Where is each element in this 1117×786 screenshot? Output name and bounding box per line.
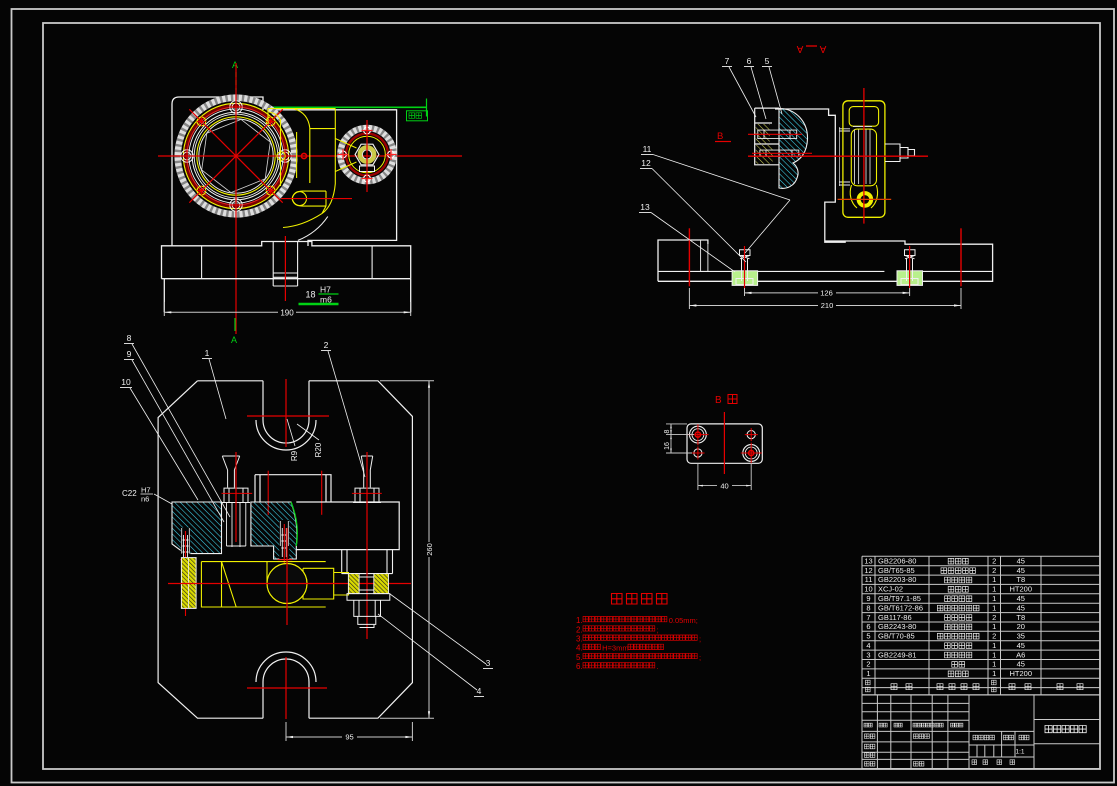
svg-text:GB/T97.1-85: GB/T97.1-85 [878, 594, 921, 603]
svg-text:1: 1 [992, 594, 996, 603]
svg-text:45: 45 [1017, 660, 1025, 669]
svg-text:4.: 4. [576, 644, 583, 653]
svg-text:HT200: HT200 [1009, 585, 1032, 594]
svg-text:20: 20 [1017, 622, 1025, 631]
svg-text:5.: 5. [576, 653, 583, 662]
svg-text:HT200: HT200 [1009, 669, 1032, 678]
svg-text:9: 9 [866, 594, 870, 603]
svg-text:T8: T8 [1016, 613, 1025, 622]
svg-text:;: ; [657, 625, 659, 634]
svg-text:95: 95 [345, 733, 353, 742]
svg-text:12: 12 [641, 158, 651, 168]
svg-text:GB117-86: GB117-86 [878, 613, 912, 622]
svg-text:GB2206-80: GB2206-80 [878, 556, 916, 565]
svg-text:1: 1 [992, 575, 996, 584]
svg-text:12: 12 [864, 566, 872, 575]
svg-text:1.: 1. [576, 616, 583, 625]
svg-text:H7: H7 [141, 486, 151, 495]
svg-text:A: A [819, 43, 826, 54]
svg-text:3: 3 [866, 650, 870, 659]
svg-text:GB2249-81: GB2249-81 [878, 650, 916, 659]
svg-text:45: 45 [1017, 594, 1025, 603]
svg-text:2: 2 [866, 660, 870, 669]
svg-text:;: ; [699, 653, 701, 662]
svg-text:45: 45 [1017, 641, 1025, 650]
svg-text:16: 16 [664, 442, 671, 450]
svg-text:13: 13 [640, 202, 650, 212]
svg-text:2: 2 [992, 556, 996, 565]
svg-text:35: 35 [1017, 632, 1025, 641]
svg-text:11: 11 [865, 575, 873, 584]
svg-text:7: 7 [866, 613, 870, 622]
svg-text:13: 13 [864, 556, 872, 565]
svg-text:11: 11 [643, 144, 652, 154]
svg-text:1: 1 [992, 650, 996, 659]
svg-text:T8: T8 [1016, 575, 1025, 584]
svg-text:0.05mm;: 0.05mm; [669, 616, 698, 625]
svg-text:1: 1 [992, 603, 996, 612]
svg-text:XCJ-02: XCJ-02 [878, 585, 903, 594]
svg-text:GB/T70-85: GB/T70-85 [878, 632, 915, 641]
svg-text:2: 2 [992, 613, 996, 622]
svg-text:260: 260 [425, 543, 434, 556]
svg-text:A: A [231, 335, 237, 345]
svg-text:2.: 2. [576, 625, 583, 634]
svg-text:GB/T6172-86: GB/T6172-86 [878, 603, 923, 612]
svg-text:2: 2 [324, 340, 329, 350]
svg-text:8: 8 [127, 333, 132, 343]
svg-text:190: 190 [280, 309, 294, 318]
svg-text:3: 3 [486, 658, 491, 668]
svg-text:45: 45 [1017, 566, 1025, 575]
svg-text:4: 4 [866, 641, 870, 650]
svg-text:H=3mm: H=3mm [602, 644, 628, 653]
svg-text:1: 1 [992, 585, 996, 594]
svg-text:H7: H7 [320, 285, 331, 295]
svg-text:3.: 3. [576, 635, 583, 644]
svg-text:A6: A6 [1016, 650, 1025, 659]
svg-text:A: A [796, 43, 803, 54]
svg-text:1: 1 [992, 641, 996, 650]
svg-text:9: 9 [127, 349, 132, 359]
svg-text:45: 45 [1017, 556, 1025, 565]
svg-text:210: 210 [821, 301, 834, 310]
svg-text:1: 1 [205, 348, 210, 358]
svg-text:R9: R9 [290, 450, 299, 461]
svg-text:n6: n6 [141, 495, 149, 504]
svg-text:.: . [657, 662, 659, 671]
svg-text:8: 8 [866, 603, 870, 612]
svg-text:GB/T65-85: GB/T65-85 [878, 566, 915, 575]
svg-text:2: 2 [992, 566, 996, 575]
svg-text:45: 45 [1017, 603, 1025, 612]
svg-text:1: 1 [992, 622, 996, 631]
svg-text:B: B [715, 395, 722, 406]
svg-text:6: 6 [866, 622, 870, 631]
svg-text:1: 1 [992, 669, 996, 678]
svg-text:18: 18 [306, 290, 316, 300]
svg-text:4: 4 [477, 686, 482, 696]
svg-text:6.: 6. [576, 662, 583, 671]
svg-text:40: 40 [720, 482, 728, 491]
svg-text:R20: R20 [314, 442, 323, 457]
svg-text:C22: C22 [122, 489, 137, 498]
svg-text:10: 10 [864, 585, 872, 594]
svg-text:5: 5 [765, 56, 770, 66]
svg-text:5: 5 [866, 632, 870, 641]
svg-text:8: 8 [664, 429, 671, 433]
svg-text:GB2243-80: GB2243-80 [878, 622, 916, 631]
svg-text:1: 1 [992, 660, 996, 669]
svg-text:B: B [717, 131, 723, 142]
svg-text:6: 6 [747, 56, 752, 66]
svg-text:126: 126 [820, 289, 833, 298]
svg-text:A: A [232, 60, 238, 70]
svg-text:GB2203-80: GB2203-80 [878, 575, 916, 584]
svg-text:7: 7 [725, 56, 730, 66]
svg-text:2: 2 [992, 632, 996, 641]
svg-text:1:1: 1:1 [1015, 749, 1024, 756]
svg-text:1: 1 [866, 669, 870, 678]
svg-text:;: ; [699, 635, 701, 644]
svg-text:10: 10 [121, 377, 131, 387]
